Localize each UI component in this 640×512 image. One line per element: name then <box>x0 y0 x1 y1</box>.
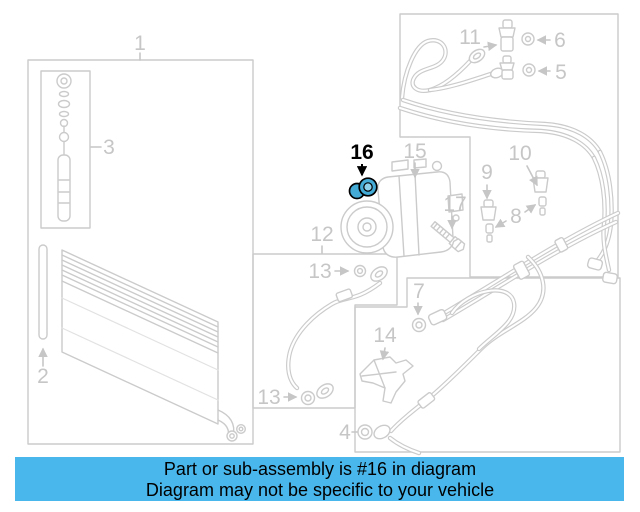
leader-arrows <box>43 40 550 432</box>
part-16-seal-core <box>364 183 372 191</box>
condenser-drawing <box>62 250 245 441</box>
right-hose-runs <box>443 152 618 320</box>
part-label-6: 6 <box>554 29 566 52</box>
part-label-13-lower: 13 <box>257 386 280 409</box>
part-label-17: 17 <box>443 193 466 216</box>
part-label-16-highlighted: 16 <box>350 141 373 164</box>
part-label-7: 7 <box>413 280 425 303</box>
oring-5-drawing <box>523 64 535 76</box>
oring-6-drawing <box>522 33 534 45</box>
pressure-switch-drawing <box>499 20 515 51</box>
oring-7-drawing <box>413 319 426 332</box>
ac-parts-diagram: 1 2 3 4 5 6 7 8 9 10 11 12 13 13 14 15 1… <box>0 0 640 512</box>
highlighted-part-16 <box>350 164 377 199</box>
parts-diagram-page: 1 2 3 4 5 6 7 8 9 10 11 12 13 13 14 15 1… <box>0 0 640 512</box>
part-label-8: 8 <box>510 205 522 228</box>
receiver-drier-drawing <box>57 74 71 221</box>
banner-line-1: Part or sub-assembly is #16 in diagram <box>164 459 476 479</box>
service-valve-drawing <box>500 56 514 79</box>
part-label-5: 5 <box>555 61 567 84</box>
part-label-3: 3 <box>103 136 115 159</box>
part-label-12: 12 <box>310 223 333 246</box>
highlight-banner: Part or sub-assembly is #16 in diagram D… <box>15 457 624 501</box>
part-label-9: 9 <box>481 161 493 184</box>
part-label-13-upper: 13 <box>308 260 331 283</box>
bracket-drawing <box>360 357 413 403</box>
condenser-seal-strip <box>39 245 47 339</box>
liquid-hose-drawing <box>358 257 543 453</box>
part-label-1: 1 <box>134 32 146 55</box>
banner-line-2: Diagram may not be specific to your vehi… <box>146 480 494 500</box>
part-label-14: 14 <box>373 324 397 347</box>
part-label-2: 2 <box>37 365 49 388</box>
part-label-4: 4 <box>339 421 351 444</box>
part-label-10: 10 <box>508 142 531 165</box>
part-label-11: 11 <box>459 26 481 49</box>
part-label-15: 15 <box>403 140 426 163</box>
